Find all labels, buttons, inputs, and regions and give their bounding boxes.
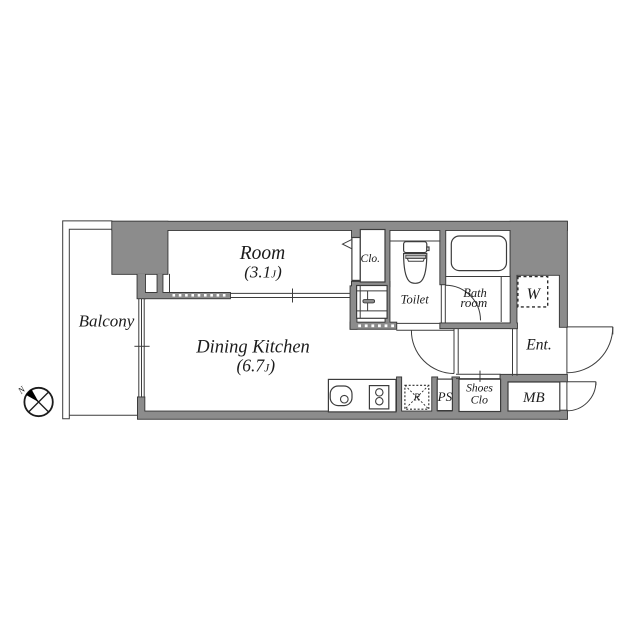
svg-text:Ent.: Ent. [525,336,551,353]
svg-text:room: room [460,295,487,310]
svg-text:(3.1J): (3.1J) [244,263,282,282]
svg-text:Clo: Clo [471,392,488,406]
svg-text:R: R [413,392,420,403]
svg-text:Balcony: Balcony [79,312,135,331]
svg-text:Toilet: Toilet [401,293,430,307]
svg-text:PS: PS [437,389,453,404]
svg-text:(6.7J): (6.7J) [236,355,275,375]
svg-text:Clo.: Clo. [361,253,381,265]
svg-text:Room: Room [239,243,286,264]
svg-text:W: W [527,286,542,303]
svg-text:MB: MB [522,390,545,406]
